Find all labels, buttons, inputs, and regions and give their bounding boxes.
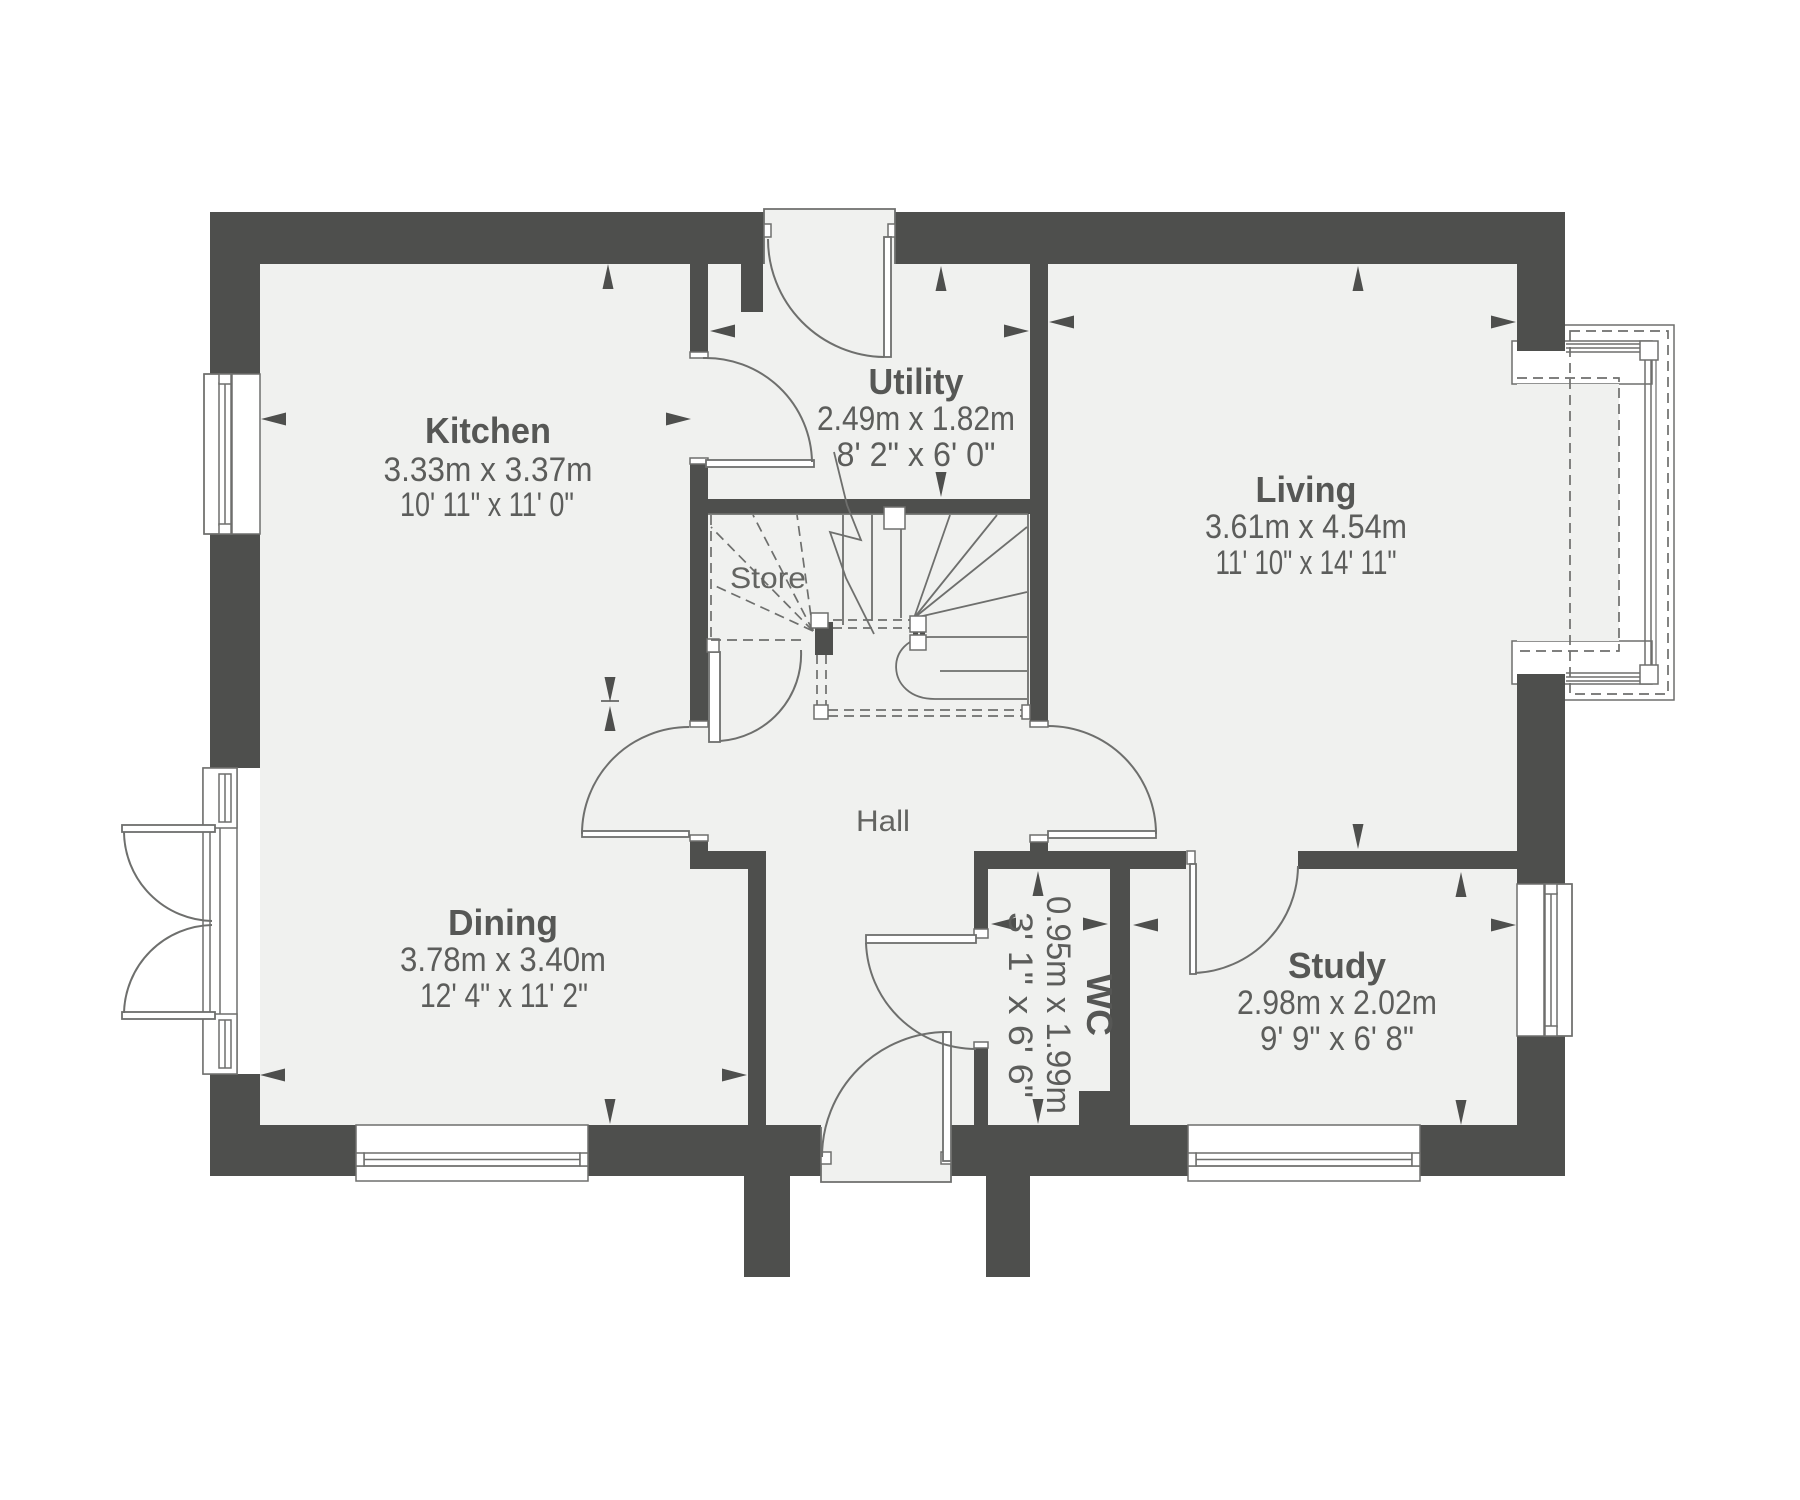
svg-text:8' 2" x 6' 0": 8' 2" x 6' 0" — [837, 436, 996, 474]
svg-text:Study: Study — [1288, 945, 1386, 986]
svg-text:9' 9" x 6' 8": 9' 9" x 6' 8" — [1260, 1020, 1414, 1058]
svg-text:Kitchen: Kitchen — [425, 410, 551, 451]
svg-text:3' 1" x 6' 6": 3' 1" x 6' 6" — [1001, 912, 1039, 1098]
svg-text:3.33m x 3.37m: 3.33m x 3.37m — [384, 451, 593, 489]
svg-text:12' 4" x 11' 2": 12' 4" x 11' 2" — [420, 977, 588, 1015]
svg-text:0.95m x 1.99m: 0.95m x 1.99m — [1039, 896, 1077, 1114]
svg-text:11' 10" x 14' 11": 11' 10" x 14' 11" — [1216, 544, 1397, 582]
svg-text:Hall: Hall — [856, 805, 910, 838]
svg-text:2.49m x 1.82m: 2.49m x 1.82m — [817, 400, 1015, 438]
svg-text:3.61m x 4.54m: 3.61m x 4.54m — [1205, 508, 1407, 546]
svg-text:Utility: Utility — [869, 361, 964, 402]
svg-text:3.78m x 3.40m: 3.78m x 3.40m — [400, 941, 606, 979]
svg-text:Dining: Dining — [448, 902, 558, 943]
svg-text:10' 11" x 11' 0": 10' 11" x 11' 0" — [400, 486, 574, 524]
svg-text:Store: Store — [730, 562, 806, 595]
svg-text:Living: Living — [1256, 469, 1357, 510]
svg-text:2.98m x 2.02m: 2.98m x 2.02m — [1237, 984, 1437, 1022]
svg-text:WC: WC — [1079, 974, 1120, 1036]
